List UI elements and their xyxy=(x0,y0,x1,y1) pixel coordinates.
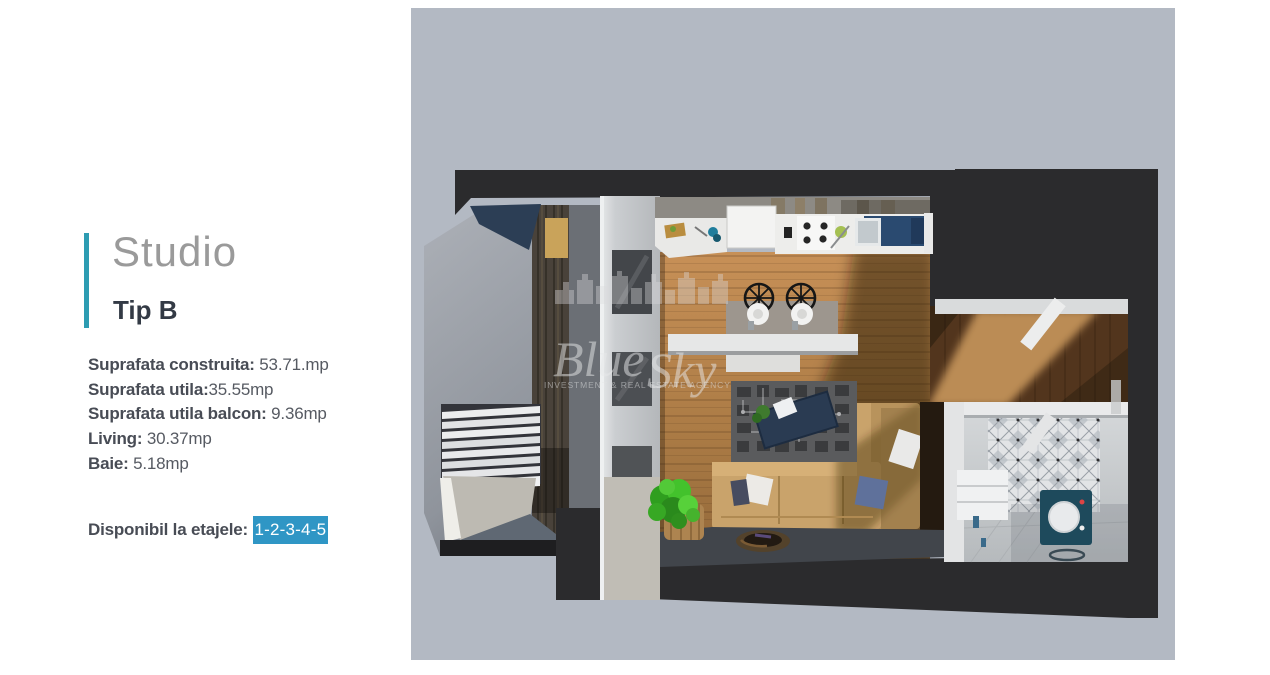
svg-text:Blue: Blue xyxy=(553,331,645,387)
svg-text:INVESTMENT & REAL ESTATE AGENC: INVESTMENT & REAL ESTATE AGENCY xyxy=(544,380,731,390)
